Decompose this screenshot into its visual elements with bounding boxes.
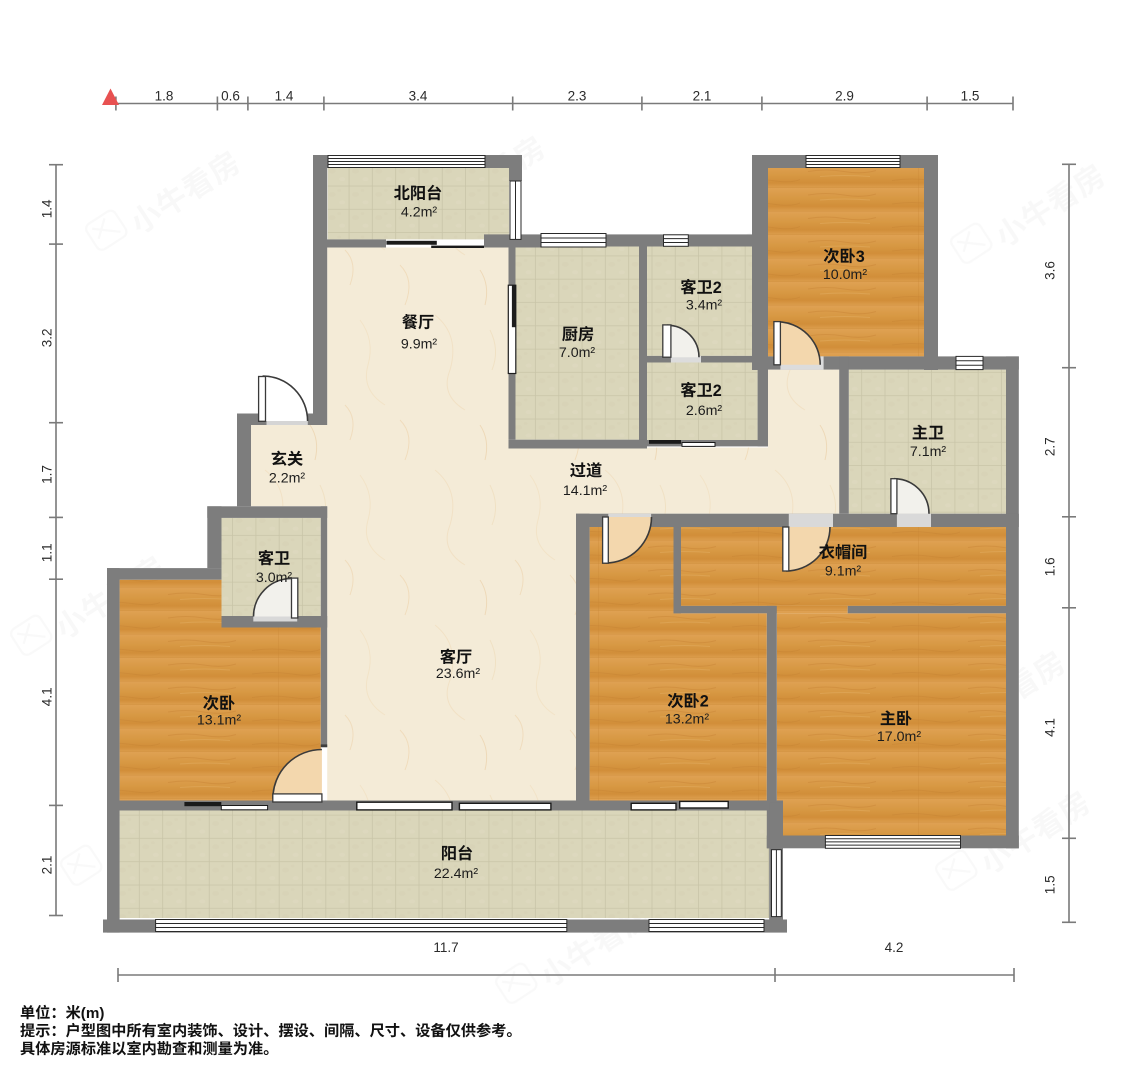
svg-text:1.4: 1.4: [275, 89, 294, 104]
svg-text:2: 2: [700, 693, 709, 711]
svg-text:7.0m²: 7.0m²: [559, 345, 596, 361]
svg-text:9.1m²: 9.1m²: [825, 563, 862, 579]
svg-text:1.7: 1.7: [40, 465, 55, 484]
svg-text:3.4: 3.4: [409, 89, 428, 104]
svg-text:14.1m²: 14.1m²: [563, 483, 607, 499]
svg-text:0.6: 0.6: [221, 89, 240, 104]
svg-text:13.2m²: 13.2m²: [665, 712, 709, 728]
svg-text:4.1: 4.1: [1043, 718, 1058, 737]
svg-text:17.0m²: 17.0m²: [877, 729, 921, 745]
svg-text:2.2m²: 2.2m²: [269, 471, 306, 487]
svg-text:2: 2: [713, 279, 722, 297]
svg-text:3.0m²: 3.0m²: [256, 570, 293, 586]
svg-text:2.7: 2.7: [1043, 437, 1058, 456]
svg-text:4.1: 4.1: [40, 687, 55, 706]
svg-text:2.3: 2.3: [568, 89, 587, 104]
svg-text:9.9m²: 9.9m²: [401, 336, 438, 352]
svg-text:3: 3: [856, 248, 865, 266]
svg-text:23.6m²: 23.6m²: [436, 666, 480, 682]
svg-text:(m): (m): [81, 1005, 105, 1022]
svg-text:1.6: 1.6: [1043, 557, 1058, 576]
svg-text:3.4m²: 3.4m²: [686, 297, 723, 313]
svg-text:1.5: 1.5: [961, 89, 980, 104]
svg-text:22.4m²: 22.4m²: [434, 866, 478, 882]
svg-text:2.1: 2.1: [40, 856, 55, 875]
svg-text:1.4: 1.4: [40, 199, 55, 218]
svg-text:1.1: 1.1: [40, 543, 55, 562]
svg-text:2.9: 2.9: [835, 89, 854, 104]
svg-text:2.6m²: 2.6m²: [686, 403, 723, 419]
svg-text:11.7: 11.7: [433, 940, 458, 955]
svg-text:1.5: 1.5: [1043, 875, 1058, 894]
svg-text:13.1m²: 13.1m²: [197, 713, 241, 729]
svg-text:2.1: 2.1: [693, 89, 712, 104]
svg-text:3.6: 3.6: [1043, 261, 1058, 280]
svg-text:3.2: 3.2: [40, 329, 55, 348]
svg-text:2: 2: [713, 382, 722, 400]
svg-text:1.8: 1.8: [155, 89, 174, 104]
svg-text:4.2m²: 4.2m²: [401, 204, 438, 220]
svg-text:7.1m²: 7.1m²: [910, 444, 947, 460]
svg-text:10.0m²: 10.0m²: [823, 267, 867, 283]
svg-text:4.2: 4.2: [885, 940, 904, 955]
